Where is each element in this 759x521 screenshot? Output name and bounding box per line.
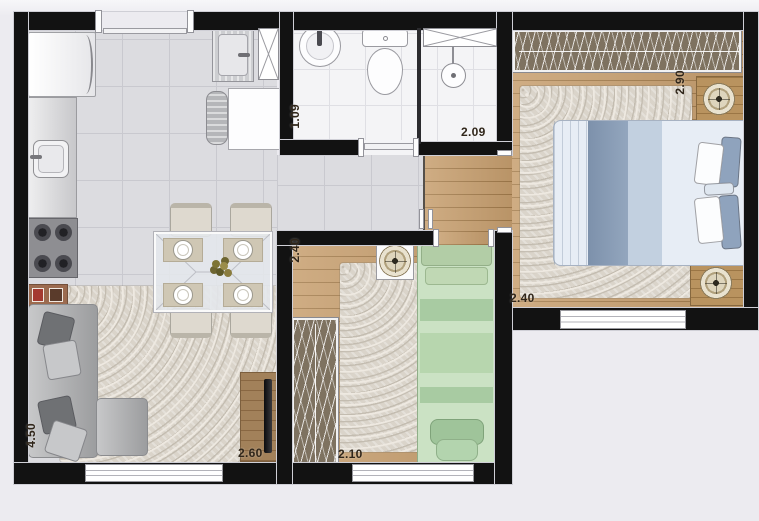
bedroom2-window-icon	[352, 464, 474, 482]
plate-icon	[233, 285, 253, 305]
shower-head-dot	[451, 73, 456, 78]
door-jamb	[187, 10, 194, 33]
door-jamb	[419, 209, 424, 229]
lamp-cross	[385, 261, 407, 262]
door-jamb	[95, 10, 102, 33]
master-width-label: 2.90	[674, 70, 686, 95]
refrigerator-door-arc	[81, 35, 93, 94]
wardrobe-icon	[292, 318, 338, 464]
burner-icon	[34, 255, 51, 272]
toilet-icon	[362, 29, 408, 47]
double-bed-icon	[553, 120, 744, 266]
bathroom-depth-label: 2.09	[461, 126, 486, 138]
bed-pillow	[694, 142, 725, 187]
sofa-chaise	[96, 398, 148, 456]
faucet-icon	[30, 155, 42, 159]
flush-button	[383, 36, 388, 41]
lamp-cross	[716, 272, 717, 294]
washing-machine-icon	[228, 88, 280, 150]
door-jamb	[488, 229, 494, 247]
decor-frame-icon	[49, 288, 63, 302]
lamp-cross	[719, 88, 720, 110]
wall-living-bedroom2	[277, 231, 292, 484]
lamp-icon	[702, 82, 736, 116]
wardrobe-rod	[315, 324, 316, 462]
wall-bath-left	[280, 12, 293, 155]
faucet-icon	[317, 28, 322, 46]
single-bed-icon	[417, 240, 496, 466]
plate-icon	[173, 285, 193, 305]
bed-pillow	[694, 196, 725, 244]
side-table-icon	[28, 284, 68, 306]
refrigerator-icon	[28, 32, 96, 97]
bed-fold-lines	[554, 121, 588, 265]
bed-blanket-stripe	[420, 299, 493, 321]
wall-bedroom2-right	[495, 231, 512, 484]
dining-chair-icon	[170, 308, 212, 338]
living-depth-label: 4.50	[25, 423, 37, 448]
bed-sham	[704, 182, 735, 196]
lamp-icon	[699, 266, 733, 300]
wall-bath-right	[497, 12, 512, 155]
bed-pillow	[425, 267, 488, 285]
bed-blanket-stripe	[420, 387, 493, 403]
duct-shaft-icon	[258, 28, 279, 80]
dining-chair-icon	[230, 308, 272, 338]
burner-icon	[55, 255, 72, 272]
burner-icon	[34, 224, 51, 241]
wardrobe-rod	[519, 51, 739, 52]
door-jamb	[497, 150, 512, 156]
sink-basin	[38, 145, 64, 173]
shower-icon	[441, 63, 466, 88]
shower-partition	[417, 28, 421, 144]
bed-blanket-stripe	[628, 121, 662, 265]
sofa-pillow	[42, 339, 82, 380]
living-width-label: 2.60	[238, 447, 263, 459]
bed-pillow	[421, 244, 492, 266]
wall-right	[744, 12, 758, 330]
laundry-tank-icon	[212, 28, 254, 82]
bedroom2-width-label: 2.40	[289, 238, 301, 263]
entry-door-leaf	[103, 28, 187, 34]
wall-left	[14, 12, 28, 484]
second-bedroom-rug	[340, 263, 422, 452]
flower-centerpiece-icon	[212, 260, 220, 268]
bed-blanket-stripe	[588, 121, 628, 265]
master-window-icon	[560, 310, 686, 329]
laundry-basket-icon	[206, 91, 228, 145]
lamp-cross	[395, 251, 396, 273]
bathroom-door-leaf	[364, 143, 414, 150]
bathroom-width-label: 1.09	[289, 104, 301, 129]
door-jamb	[497, 227, 512, 233]
burner-icon	[55, 224, 72, 241]
plate-icon	[233, 240, 253, 260]
pouf-icon	[436, 439, 478, 461]
faucet-icon	[238, 53, 250, 57]
floor-plan: 1.09 2.09 2.90 2.40 2.40 2.10 2.60 4.50	[0, 0, 759, 521]
bedroom2-depth-label: 2.10	[338, 448, 363, 460]
bed-blanket-stripe	[420, 333, 493, 373]
decor-frame-icon	[32, 288, 44, 302]
kitchen-sink-icon	[33, 140, 69, 178]
door-jamb	[428, 209, 433, 229]
wardrobe-icon	[513, 30, 741, 72]
master-depth-label: 2.40	[510, 292, 535, 304]
hallway-floor	[425, 155, 512, 233]
door-jamb	[433, 229, 439, 247]
stove-icon	[28, 218, 78, 278]
plate-icon	[173, 240, 193, 260]
wall-bath-bottom	[280, 140, 363, 155]
duct-shaft-icon	[423, 28, 497, 47]
living-window-icon	[85, 464, 223, 482]
tv-icon	[264, 379, 272, 453]
hall-nook-floor	[277, 155, 425, 233]
lamp-icon	[379, 245, 411, 277]
bedroom2-door-opening	[437, 231, 490, 245]
